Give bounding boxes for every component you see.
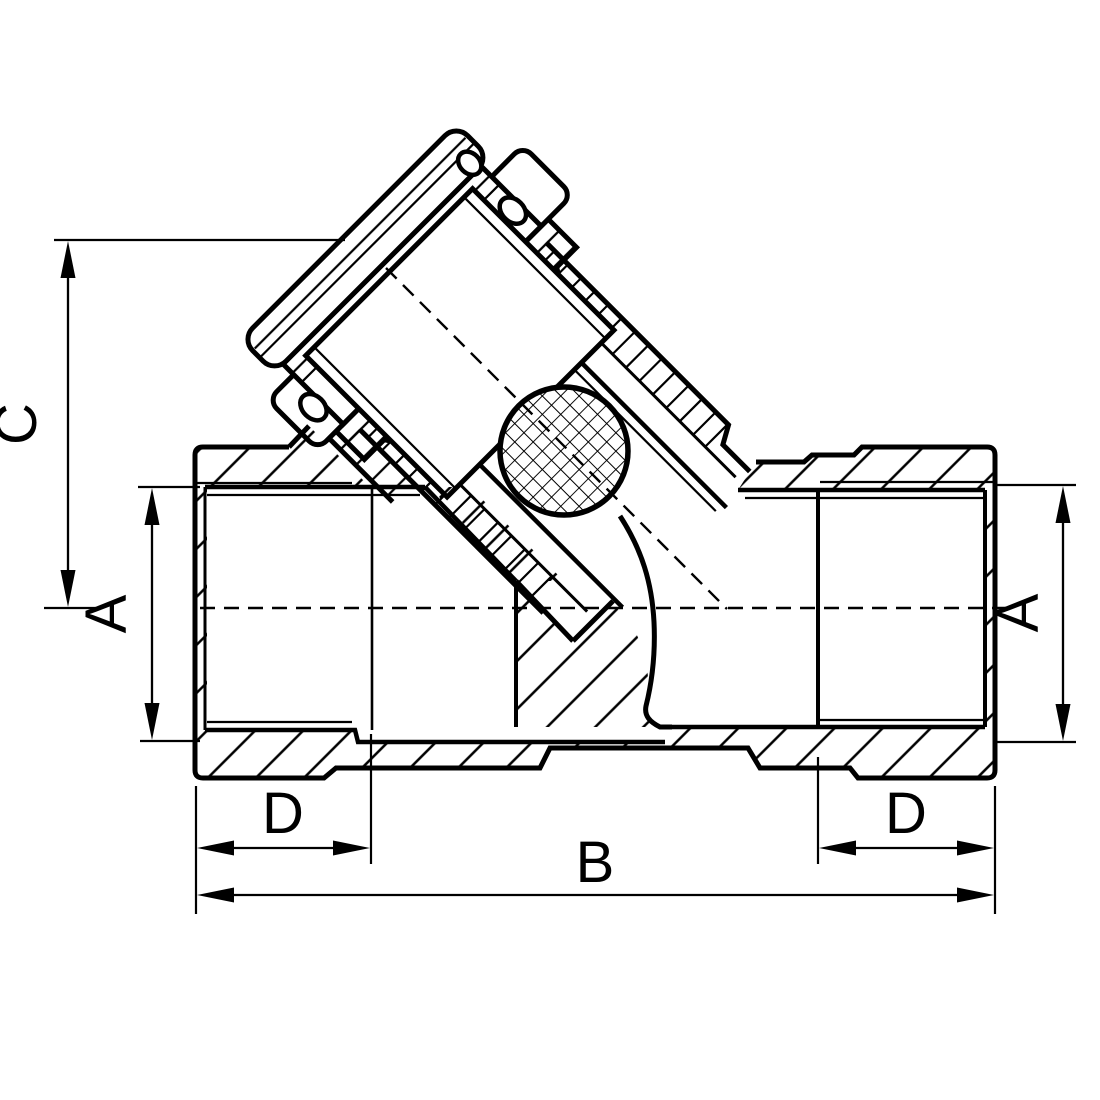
c-label: C (0, 403, 49, 445)
d-right-arrow-left (819, 841, 856, 856)
technical-drawing-canvas: C A A D D B (0, 0, 1100, 1100)
d-left-arrow-right (333, 841, 370, 856)
a-right-arrow-down (1056, 704, 1071, 741)
mesh-screen-circle (500, 387, 628, 515)
b-arrow-right (957, 888, 994, 903)
a-left-arrow-up (145, 488, 160, 525)
a-left-label: A (74, 594, 139, 633)
a-right-arrow-up (1056, 486, 1071, 523)
d-left-label: D (262, 781, 304, 846)
d-left-arrow-left (197, 841, 234, 856)
y-strainer-drawing: C A A D D B (0, 0, 1100, 1100)
b-arrow-left (197, 888, 234, 903)
d-right-label: D (885, 781, 927, 846)
a-left-arrow-down (145, 703, 160, 740)
c-arrow-up (61, 241, 76, 278)
d-right-arrow-right (957, 841, 994, 856)
dimension-a-left: A (74, 487, 200, 741)
filter-mesh-screen (500, 387, 628, 515)
a-right-label: A (986, 593, 1051, 632)
dimension-a-right: A (986, 485, 1076, 742)
dimension-b: B (197, 830, 994, 903)
b-label: B (576, 830, 615, 895)
